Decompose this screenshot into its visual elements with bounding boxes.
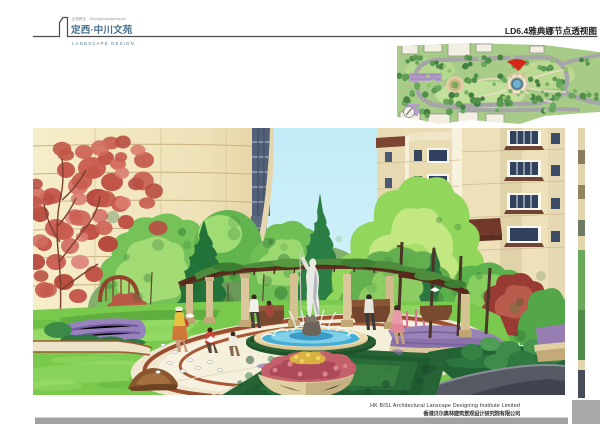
svg-text:LD6.4雅典娜节点透视图: LD6.4雅典娜节点透视图	[505, 25, 598, 36]
svg-text:HK BISL Architectural Lanscape: HK BISL Architectural Lanscape Designing…	[370, 403, 520, 409]
svg-text:香港贝尔奥林建筑景观设计研究院有限公司: 香港贝尔奥林建筑景观设计研究院有限公司	[422, 410, 520, 418]
svg-text:LANDSCAPE DESIGN: LANDSCAPE DESIGN	[72, 41, 135, 46]
svg-text:定西·中川文苑: 定西·中川文苑	[71, 24, 133, 36]
svg-text:定西报业 · Zhongchuanwenyuan: 定西报业 · Zhongchuanwenyuan	[72, 16, 126, 21]
